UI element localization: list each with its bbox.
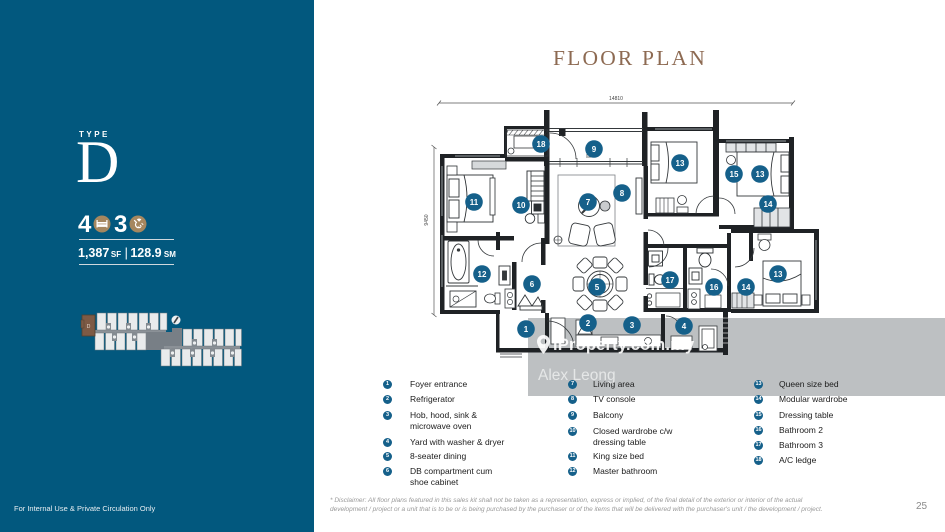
svg-text:17: 17: [666, 276, 675, 285]
svg-text:13: 13: [676, 159, 685, 168]
svg-text:8: 8: [620, 189, 625, 198]
svg-text:13: 13: [774, 270, 783, 279]
svg-text:11: 11: [470, 198, 479, 207]
svg-text:7: 7: [586, 198, 591, 207]
svg-text:13: 13: [756, 170, 765, 179]
svg-text:9: 9: [592, 145, 597, 154]
svg-text:1: 1: [524, 325, 529, 334]
svg-text:9450: 9450: [424, 214, 430, 225]
svg-text:14: 14: [764, 200, 773, 209]
svg-text:12: 12: [478, 270, 487, 279]
svg-text:6: 6: [530, 280, 535, 289]
svg-text:3: 3: [630, 321, 635, 330]
svg-text:14: 14: [742, 283, 751, 292]
svg-text:18: 18: [537, 140, 546, 149]
svg-text:D: D: [87, 324, 91, 330]
svg-text:4: 4: [682, 322, 687, 331]
svg-text:2: 2: [586, 319, 591, 328]
svg-text:5: 5: [595, 283, 600, 292]
svg-text:16: 16: [710, 283, 719, 292]
svg-text:14810: 14810: [609, 96, 623, 102]
svg-text:15: 15: [730, 170, 739, 179]
svg-text:10: 10: [517, 201, 526, 210]
